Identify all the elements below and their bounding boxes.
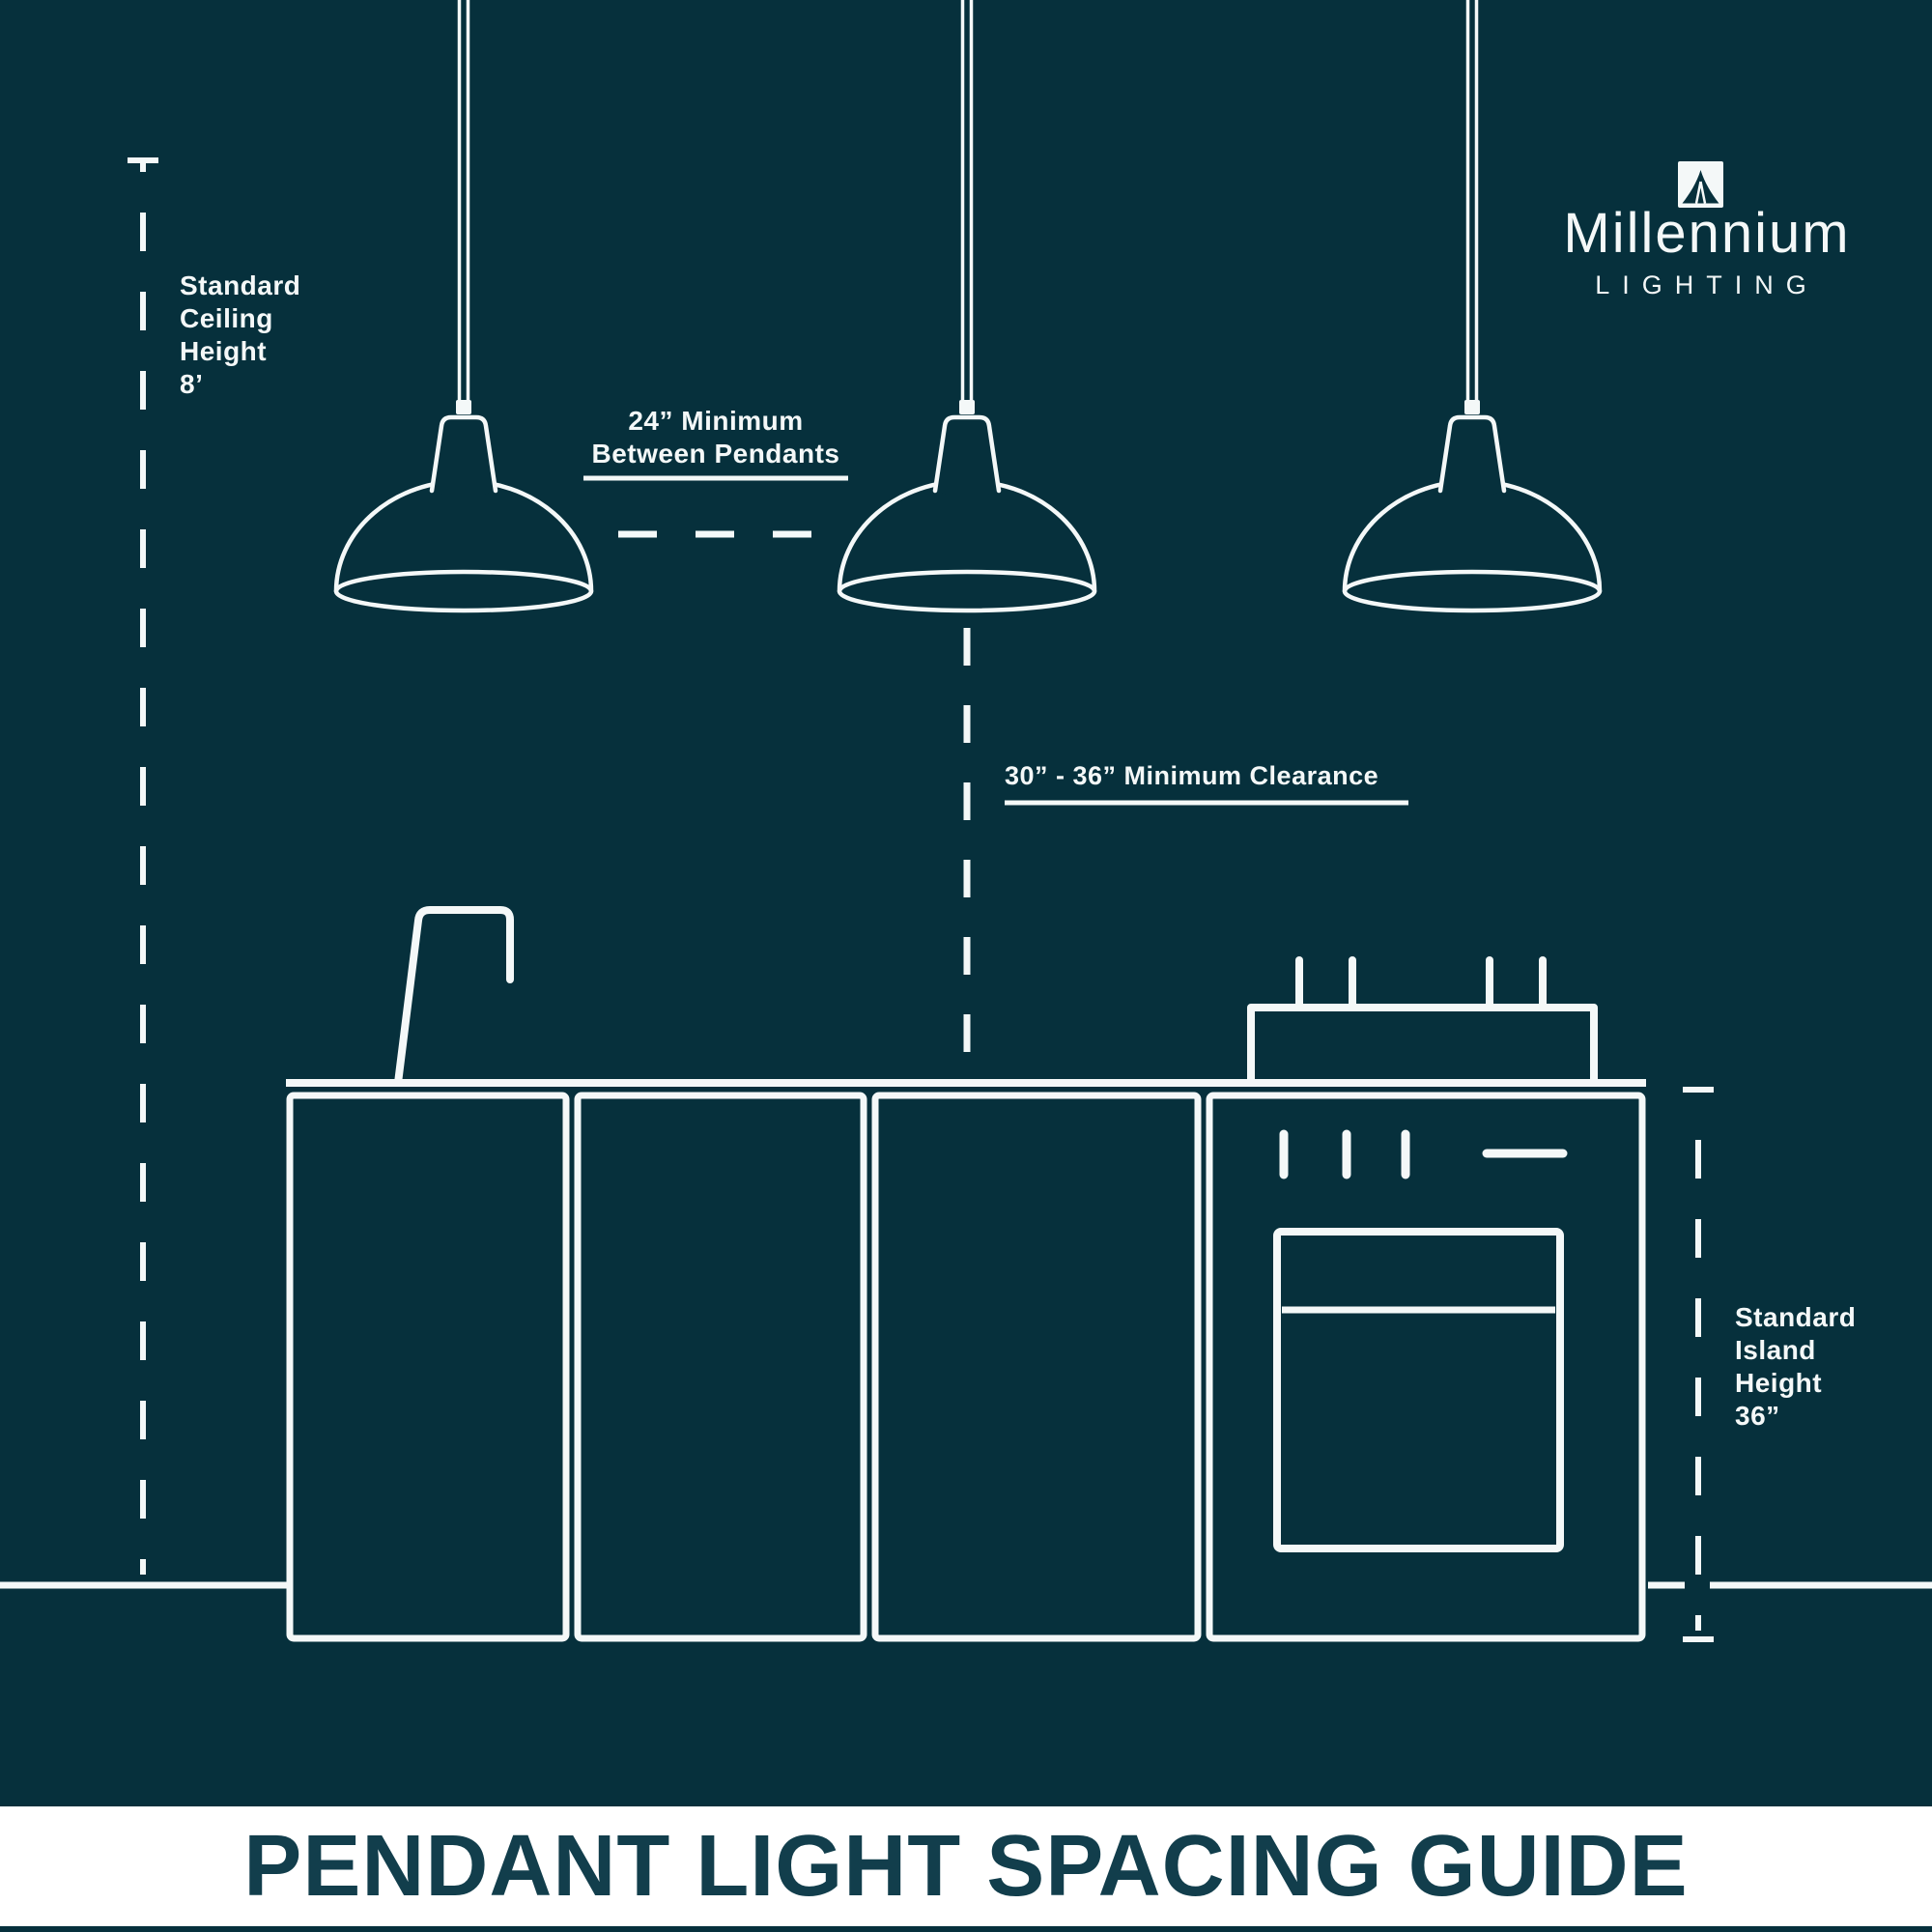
faucet [398, 910, 510, 1083]
cabinet-door-1 [290, 1095, 566, 1638]
cabinet-door-3 [875, 1095, 1198, 1638]
clearance-dimension [967, 628, 1408, 1053]
oven-door [1277, 1232, 1560, 1548]
page-title: PENDANT LIGHT SPACING GUIDE [243, 1817, 1688, 1917]
pendant-light-3 [1345, 0, 1600, 611]
title-banner: PENDANT LIGHT SPACING GUIDE [0, 1806, 1932, 1926]
pendant-spacing-dimension [583, 478, 848, 534]
island-height-dimension-line [1683, 1090, 1714, 1639]
island-height-label: Standard Island Height 36” [1735, 1301, 1856, 1433]
pendant-spacing-label: 24” Minimum Between Pendants [571, 405, 861, 470]
logo: Millennium LIGHTING [1515, 205, 1899, 299]
clearance-label: 30” - 36” Minimum Clearance [1005, 759, 1378, 792]
pendant-light-2 [839, 0, 1094, 611]
stove [1251, 960, 1594, 1548]
pendant-light-1 [336, 0, 591, 611]
ceiling-height-dimension-line [128, 160, 158, 1575]
millennium-pendant-icon [1678, 161, 1723, 208]
cooktop-body [1251, 1008, 1594, 1083]
ceiling-height-label: Standard Ceiling Height 8’ [180, 270, 300, 401]
logo-brand-name: Millennium [1515, 205, 1899, 263]
logo-tagline: LIGHTING [1515, 270, 1899, 299]
cabinet-door-2 [578, 1095, 864, 1638]
pendant-spacing-infographic: Standard Ceiling Height 8’ 24” Minimum B… [0, 0, 1932, 1932]
banner-bottom-edge [0, 1926, 1932, 1932]
